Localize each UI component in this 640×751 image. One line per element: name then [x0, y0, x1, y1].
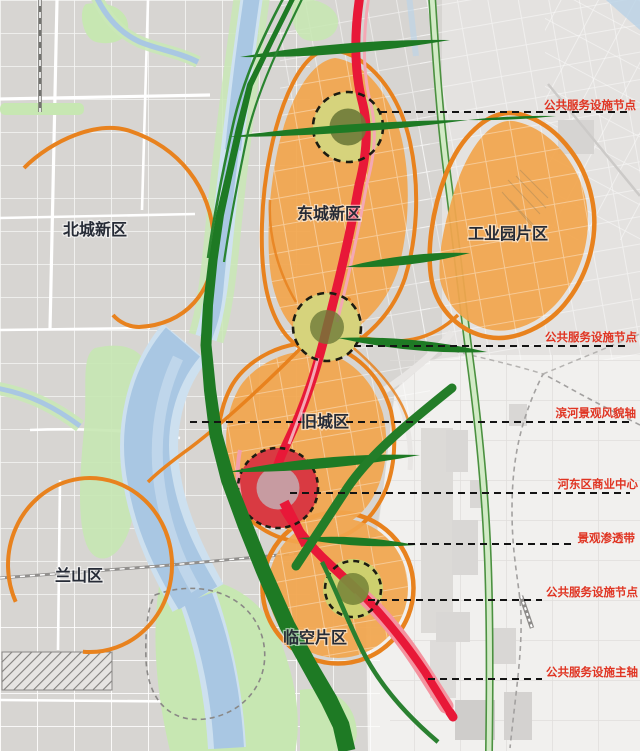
svg-text:北城新区: 北城新区	[63, 220, 127, 239]
svg-text:公共服务设施节点: 公共服务设施节点	[545, 330, 637, 344]
svg-text:工业园片区: 工业园片区	[468, 224, 548, 243]
svg-text:公共服务设施主轴: 公共服务设施主轴	[546, 665, 638, 679]
svg-text:滨河景观风貌轴: 滨河景观风貌轴	[556, 406, 637, 420]
svg-text:公共服务设施节点: 公共服务设施节点	[544, 98, 636, 112]
svg-text:景观渗透带: 景观渗透带	[577, 531, 636, 545]
svg-text:东城新区: 东城新区	[297, 204, 361, 223]
svg-text:河东区商业中心: 河东区商业中心	[558, 477, 639, 491]
svg-text:兰山区: 兰山区	[55, 566, 103, 585]
svg-text:临空片区: 临空片区	[283, 628, 347, 647]
svg-text:公共服务设施节点: 公共服务设施节点	[546, 585, 638, 599]
svg-text:旧城区: 旧城区	[301, 413, 349, 431]
